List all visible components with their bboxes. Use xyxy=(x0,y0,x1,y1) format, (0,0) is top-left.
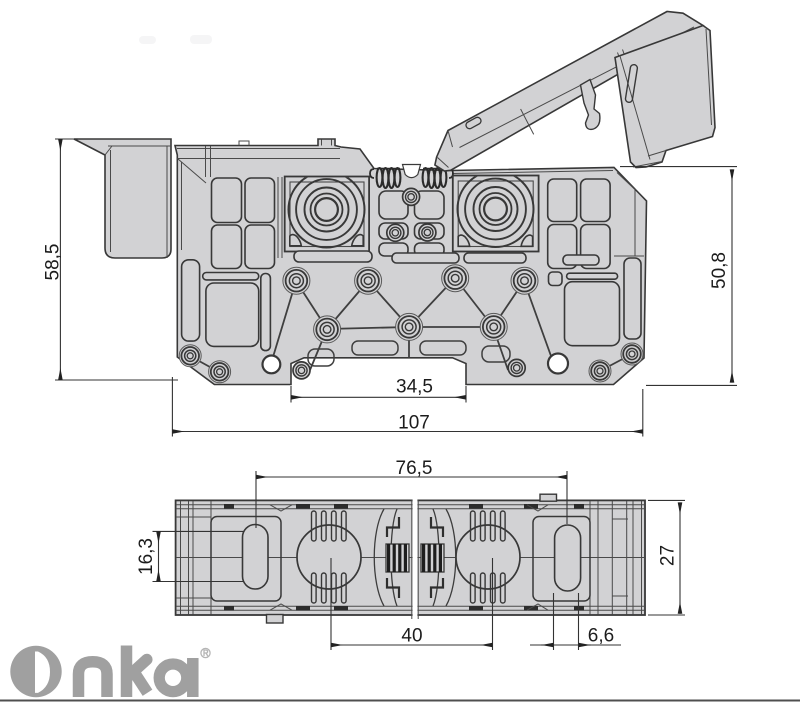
svg-text:16,3: 16,3 xyxy=(136,538,157,575)
svg-text:6,6: 6,6 xyxy=(588,626,614,647)
svg-text:58,5: 58,5 xyxy=(43,244,64,281)
svg-text:27: 27 xyxy=(658,545,679,566)
svg-text:40: 40 xyxy=(401,626,422,647)
svg-text:50,8: 50,8 xyxy=(709,252,730,289)
svg-text:107: 107 xyxy=(398,413,430,434)
svg-text:34,5: 34,5 xyxy=(396,377,433,398)
svg-text:76,5: 76,5 xyxy=(396,458,433,479)
